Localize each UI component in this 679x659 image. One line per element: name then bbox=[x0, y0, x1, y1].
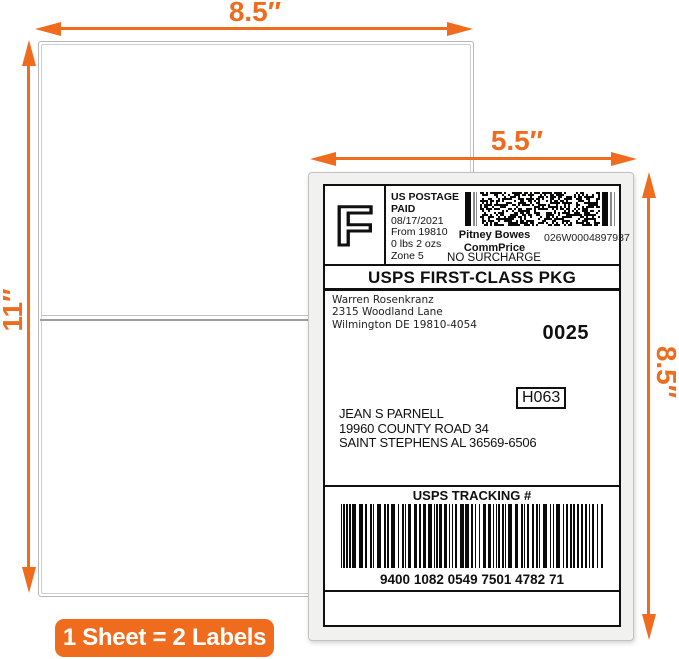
product-diagram: F US POSTAGE PAID 08/17/2021 From 19810 … bbox=[0, 0, 679, 659]
routing-code: H063 bbox=[516, 387, 566, 409]
postage-header: F US POSTAGE PAID 08/17/2021 From 19810 … bbox=[325, 186, 619, 266]
recipient-line: SAINT STEPHENS AL 36569-6506 bbox=[339, 435, 536, 450]
tracking-bottom-divider bbox=[325, 590, 619, 592]
tracking-title: USPS TRACKING # bbox=[325, 488, 619, 503]
recipient-line: 19960 COUNTY ROAD 34 bbox=[339, 421, 489, 436]
batch-number: 0025 bbox=[543, 322, 590, 345]
recipient-line: JEAN S PARNELL bbox=[339, 406, 444, 421]
arrow-line bbox=[51, 27, 457, 30]
meter-id: 026W0004897937 bbox=[544, 232, 630, 244]
postage-line: US POSTAGE PAID bbox=[391, 191, 459, 215]
tracking-barcode bbox=[341, 504, 603, 568]
arrow-head-bottom bbox=[642, 614, 656, 640]
surcharge-note: NO SURCHARGE bbox=[433, 252, 555, 264]
sheet-width-arrow bbox=[35, 20, 473, 37]
meter-vendor-line: Pitney Bowes bbox=[459, 229, 531, 241]
tracking-number: 9400 1082 0549 7501 4782 71 bbox=[325, 572, 619, 587]
arrow-line bbox=[647, 188, 650, 624]
indicia-letter: F bbox=[335, 198, 373, 254]
arrow-head-right bbox=[611, 152, 637, 166]
sender-line: Wilmington DE 19810-4054 bbox=[332, 319, 477, 331]
meter-2d-barcode bbox=[465, 192, 617, 226]
sender-line: 2315 Woodland Lane bbox=[332, 306, 443, 318]
arrow-line bbox=[27, 56, 30, 577]
label-width-arrow bbox=[310, 150, 637, 167]
arrow-head-right bbox=[447, 22, 473, 36]
sender-address: Warren Rosenkranz 2315 Woodland Lane Wil… bbox=[332, 294, 477, 331]
arrow-head-bottom bbox=[22, 567, 36, 593]
recipient-address: JEAN S PARNELL 19960 COUNTY ROAD 34 SAIN… bbox=[339, 407, 536, 451]
labels-per-sheet-badge: 1 Sheet = 2 Labels bbox=[55, 619, 274, 657]
indicia-cell: F bbox=[325, 186, 386, 266]
postage-line: Zone 5 bbox=[391, 250, 424, 262]
label-height-arrow bbox=[640, 172, 657, 640]
postage-line: 08/17/2021 bbox=[391, 215, 444, 227]
shipping-label-border: F US POSTAGE PAID 08/17/2021 From 19810 … bbox=[323, 184, 621, 627]
postage-line: 0 lbs 2 ozs bbox=[391, 238, 441, 250]
sheet-height-arrow bbox=[20, 40, 37, 593]
service-banner: USPS FIRST-CLASS PKG bbox=[325, 268, 619, 291]
arrow-line bbox=[326, 157, 621, 160]
shipping-label: F US POSTAGE PAID 08/17/2021 From 19810 … bbox=[308, 172, 634, 641]
meter-vendor: Pitney Bowes CommPrice bbox=[437, 229, 552, 254]
tracking-top-divider bbox=[325, 485, 619, 487]
sender-line: Warren Rosenkranz bbox=[332, 294, 434, 306]
